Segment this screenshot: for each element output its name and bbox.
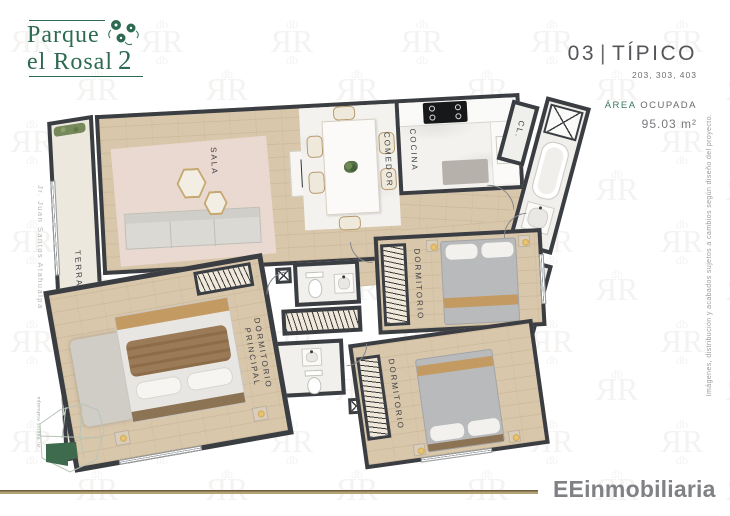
- closet-hangers: [380, 243, 410, 326]
- area-value: 95.03 m²: [568, 117, 697, 131]
- bed-bench: [444, 294, 518, 308]
- room-label-cl: CL.: [513, 120, 526, 140]
- nightstand: [252, 405, 269, 421]
- unit-number: 03: [568, 42, 596, 65]
- room-label-cocina: COCINA: [408, 128, 419, 172]
- unit-header: 03|TÍPICO 203, 303, 403 ÁREA OCUPADA 95.…: [568, 42, 697, 131]
- bed-pillow: [134, 375, 182, 401]
- bed-pillow: [481, 242, 514, 259]
- unit-type: TÍPICO: [612, 42, 697, 65]
- plant-icon: [344, 161, 359, 174]
- dining-table: [321, 119, 380, 216]
- dining-chair: [306, 135, 323, 158]
- bed-pillow: [467, 417, 501, 436]
- unit-title: 03|TÍPICO: [568, 42, 697, 66]
- bed-bench: [417, 356, 494, 376]
- room-label-dormitorio-1: DORMITORIO: [412, 248, 425, 320]
- developer-brand: EEinmobiliaria: [553, 476, 716, 503]
- bed-pillow: [186, 366, 234, 392]
- room-dormitorio-1: DORMITORIO: [374, 228, 547, 335]
- room-bathroom-2: [293, 260, 361, 307]
- area-label-accent: ÁREA: [605, 100, 636, 111]
- room-dormitorio-2: DORMITORIO: [348, 319, 550, 470]
- area-label-rest: OCUPADA: [640, 100, 697, 111]
- logo-line1: Parque: [27, 22, 100, 48]
- bed-pillow: [445, 243, 478, 260]
- area-label: ÁREA OCUPADA: [568, 100, 697, 111]
- site-map-highlight-parcel: [46, 442, 78, 466]
- lamp-icon: [512, 433, 520, 441]
- lamp-icon: [430, 243, 437, 250]
- room-label-dormitorio-2: DORMITORIO: [387, 358, 406, 430]
- window: [119, 445, 203, 465]
- dining-chair: [308, 171, 325, 194]
- dining-chair: [339, 215, 362, 230]
- lamp-icon: [257, 410, 265, 418]
- plant-icon: [53, 122, 85, 137]
- bed: [415, 349, 505, 453]
- lamp-icon: [119, 434, 127, 442]
- stove-icon: [423, 101, 468, 124]
- floor-plan: TERRAZA SALA: [44, 77, 659, 490]
- lamp-icon: [417, 447, 425, 455]
- disclaimer-text: Imágenes, distribución y acabados sujeto…: [706, 110, 718, 400]
- bed-principal: [114, 297, 247, 424]
- sofa: [124, 207, 262, 250]
- logo-rule-top: [29, 20, 105, 21]
- page: db ЯR db db ЯR db Parque: [0, 0, 730, 516]
- site-map-street-label: Jr. Santos Atahualpa: [36, 392, 44, 452]
- lamp-icon: [521, 238, 528, 245]
- rose-icon: [104, 18, 144, 48]
- unit-title-separator: |: [596, 42, 612, 65]
- closet-hangers: [193, 262, 254, 296]
- room-label-sala: SALA: [209, 147, 219, 176]
- toilet-icon: [305, 370, 324, 395]
- sink-icon: [334, 273, 355, 294]
- closet-hangers: [356, 354, 391, 441]
- unit-list: 203, 303, 403: [568, 70, 697, 80]
- nightstand: [413, 443, 427, 457]
- nightstand: [426, 239, 439, 252]
- logo-rule-bottom: [29, 76, 143, 77]
- sink-icon: [301, 348, 322, 367]
- logo-number: 2: [118, 45, 133, 75]
- bed: [440, 237, 520, 325]
- footer-rule: [0, 490, 538, 494]
- toilet-icon: [305, 271, 324, 298]
- kitchen-island: [442, 159, 489, 185]
- brand-logo: Parque el Rosal2: [27, 20, 144, 77]
- logo-line2: el Rosal: [27, 49, 113, 75]
- dining-chair: [333, 106, 356, 121]
- street-name-left: Jr. Juan Santos Atahualpa: [36, 185, 45, 310]
- nightstand: [508, 430, 522, 444]
- bed-bench: [115, 298, 230, 331]
- bathtub-icon: [529, 139, 571, 202]
- window: [50, 180, 60, 276]
